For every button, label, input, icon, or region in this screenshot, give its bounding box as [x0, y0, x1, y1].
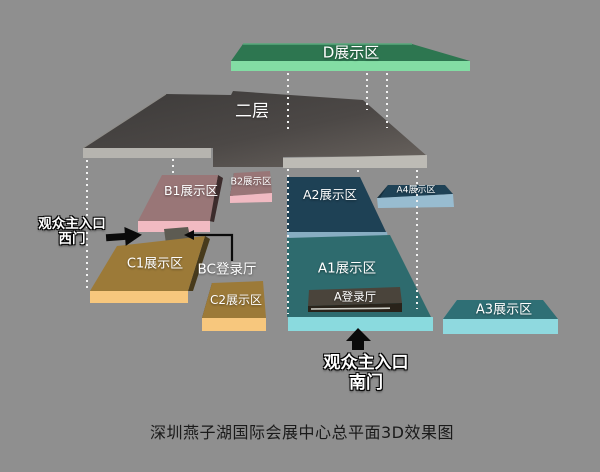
second-floor-front-left	[83, 148, 211, 158]
zone-label-a4: A4展示区	[397, 187, 436, 196]
zone-label-a3: A3展示区	[476, 304, 532, 317]
west-entrance-label-line1: 观众主入口	[38, 217, 106, 232]
zone-label-a-hall: A登录厅	[334, 291, 376, 303]
zone-label-a2: A2展示区	[303, 189, 357, 202]
zone-label-a1: A1展示区	[318, 262, 376, 276]
zone-label-d: D展示区	[323, 46, 380, 61]
south-entrance-label-line1: 观众主入口	[324, 354, 409, 374]
south-entrance-label-line2: 南门	[324, 374, 409, 394]
zone-label-c2: C2展示区	[210, 294, 262, 306]
zone-label-c1: C1展示区	[127, 258, 183, 271]
zone-label-b1: B1展示区	[164, 185, 218, 198]
diagram-caption: 深圳燕子湖国际会展中心总平面3D效果图	[150, 419, 454, 443]
a-hall-base-highlight	[311, 308, 390, 309]
a2-zone-roof	[287, 177, 386, 232]
zone-label-b2: B2展示区	[230, 177, 271, 187]
zone-label-bc-hall: BC登录厅	[198, 263, 257, 277]
zone-label-second-floor: 二层	[235, 104, 269, 121]
south-entrance-label: 观众主入口 南门	[324, 354, 409, 393]
south-entrance-arrow-icon	[346, 328, 371, 350]
a1-zone-front-face	[288, 317, 433, 331]
a3-zone-front-face	[443, 319, 558, 334]
exhibition-site-plan-3d: D展示区 二层 B1展示区 B2展示区 A2展示区 A4展示区 C1展示区 BC…	[0, 0, 600, 472]
c1-zone-front-face	[90, 291, 188, 303]
second-floor-front-right	[283, 155, 427, 168]
west-entrance-label-line2: 西门	[38, 232, 106, 247]
d-zone-front-face	[231, 61, 470, 71]
west-entrance-label: 观众主入口 西门	[38, 217, 106, 247]
c2-zone-front-face	[202, 318, 266, 331]
